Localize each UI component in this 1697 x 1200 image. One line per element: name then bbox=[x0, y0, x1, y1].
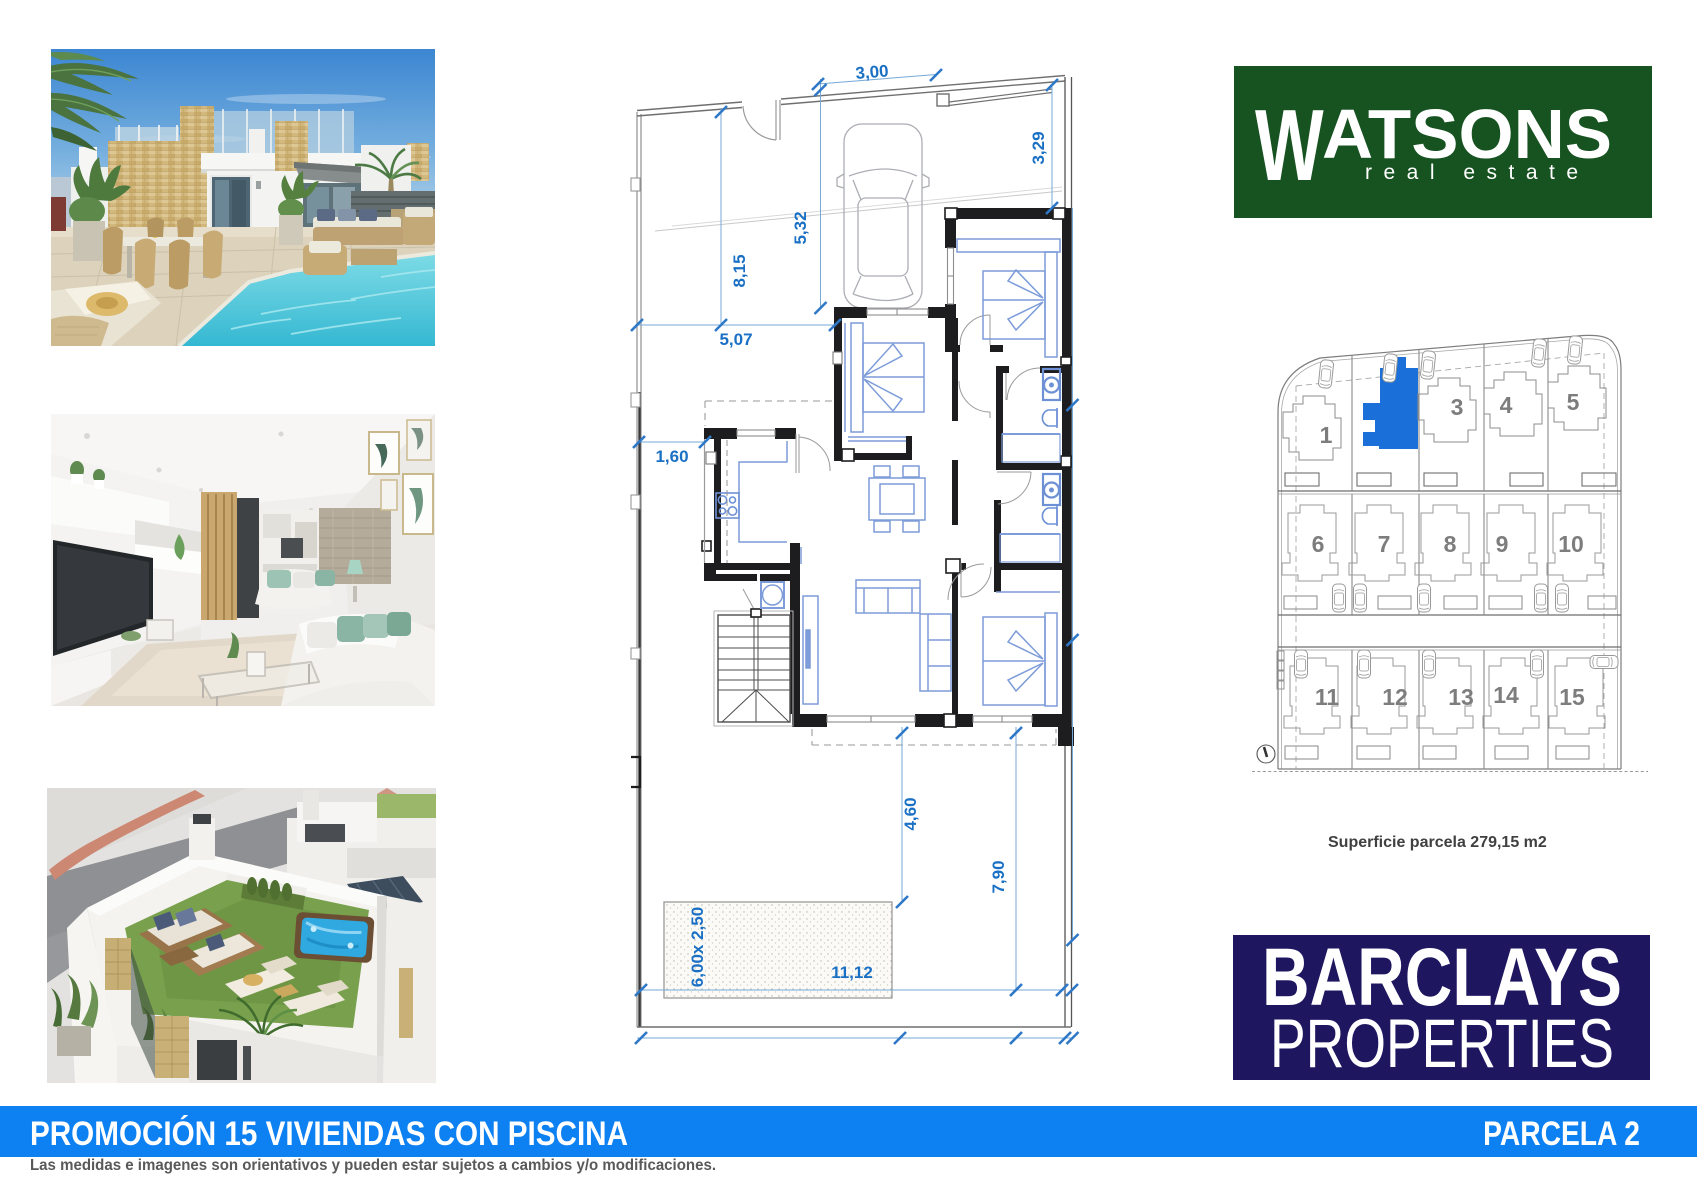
svg-text:4: 4 bbox=[1500, 392, 1513, 418]
svg-text:9: 9 bbox=[1496, 531, 1509, 557]
svg-text:6,00x 2,50: 6,00x 2,50 bbox=[688, 907, 707, 987]
svg-text:5,32: 5,32 bbox=[791, 211, 810, 244]
svg-text:11: 11 bbox=[1315, 684, 1340, 710]
svg-text:3,00: 3,00 bbox=[855, 61, 890, 83]
svg-text:5: 5 bbox=[1567, 389, 1580, 415]
svg-text:14: 14 bbox=[1493, 682, 1519, 708]
svg-text:13: 13 bbox=[1448, 684, 1474, 710]
svg-text:1: 1 bbox=[1320, 422, 1333, 448]
svg-text:10: 10 bbox=[1558, 531, 1584, 557]
svg-text:3: 3 bbox=[1451, 394, 1464, 420]
svg-text:5,07: 5,07 bbox=[719, 330, 752, 349]
svg-text:1,60: 1,60 bbox=[655, 447, 688, 466]
svg-text:11,12: 11,12 bbox=[831, 963, 873, 982]
svg-text:PROPERTIES: PROPERTIES bbox=[1270, 1005, 1614, 1080]
svg-text:8: 8 bbox=[1444, 531, 1457, 557]
svg-text:4,60: 4,60 bbox=[901, 797, 920, 830]
svg-text:6: 6 bbox=[1312, 531, 1325, 557]
svg-text:real estate: real estate bbox=[1365, 161, 1590, 184]
svg-text:8,15: 8,15 bbox=[730, 254, 749, 287]
svg-text:7,90: 7,90 bbox=[989, 860, 1008, 893]
svg-text:7: 7 bbox=[1378, 531, 1391, 557]
svg-text:W: W bbox=[1255, 88, 1324, 202]
svg-text:15: 15 bbox=[1559, 684, 1585, 710]
svg-text:12: 12 bbox=[1382, 684, 1408, 710]
svg-text:3,29: 3,29 bbox=[1029, 131, 1048, 164]
